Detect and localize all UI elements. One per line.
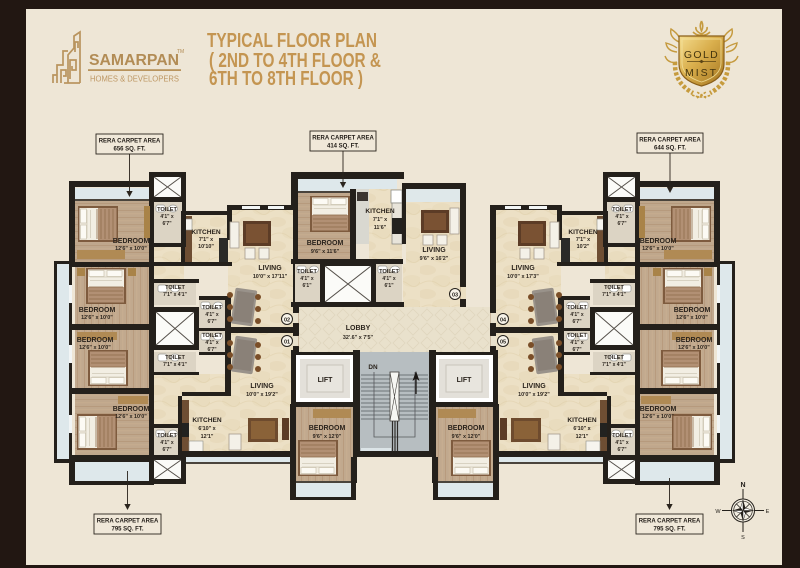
svg-text:6'7": 6'7" [162, 221, 172, 227]
svg-text:644 SQ. FT.: 644 SQ. FT. [654, 146, 686, 152]
svg-text:6'7": 6'7" [572, 319, 582, 325]
svg-text:RERA CARPET AREA: RERA CARPET AREA [639, 138, 701, 144]
svg-text:BEDROOM: BEDROOM [79, 307, 116, 314]
svg-text:7'1" x 4'1": 7'1" x 4'1" [163, 362, 187, 368]
svg-text:12'6" x 10'0": 12'6" x 10'0" [81, 315, 113, 321]
svg-text:LIVING: LIVING [258, 265, 282, 272]
svg-text:KITCHEN: KITCHEN [192, 417, 222, 424]
svg-text:12'6" x 10'0": 12'6" x 10'0" [79, 345, 111, 351]
svg-text:DN: DN [368, 364, 378, 371]
svg-text:10'0" x 19'2": 10'0" x 19'2" [246, 392, 278, 398]
svg-text:BEDROOM: BEDROOM [307, 240, 344, 247]
svg-text:6'7": 6'7" [617, 447, 627, 453]
svg-text:12'6" x 10'0": 12'6" x 10'0" [642, 246, 674, 252]
svg-text:TOILET: TOILET [612, 207, 632, 213]
svg-text:6'7": 6'7" [207, 347, 217, 353]
svg-text:LIVING: LIVING [250, 383, 274, 390]
svg-text:12'6" x 10'0": 12'6" x 10'0" [115, 414, 147, 420]
svg-text:12'6" x 10'0": 12'6" x 10'0" [676, 315, 708, 321]
svg-text:TOILET: TOILET [165, 285, 185, 291]
svg-text:12'6" x 10'0": 12'6" x 10'0" [115, 246, 147, 252]
svg-text:BEDROOM: BEDROOM [77, 337, 114, 344]
svg-text:MIST: MIST [685, 67, 718, 79]
svg-text:KITCHEN: KITCHEN [567, 417, 597, 424]
svg-text:6'1": 6'1" [302, 283, 312, 289]
svg-text:S: S [741, 535, 745, 541]
svg-text:03: 03 [452, 293, 458, 299]
svg-text:BEDROOM: BEDROOM [309, 425, 346, 432]
svg-text:SAMARPAN: SAMARPAN [89, 52, 179, 69]
svg-text:7'1" x: 7'1" x [576, 237, 590, 243]
svg-text:795 SQ. FT.: 795 SQ. FT. [653, 527, 685, 533]
svg-text:10'0" x 17'3": 10'0" x 17'3" [507, 274, 539, 280]
svg-text:6'7": 6'7" [207, 319, 217, 325]
svg-text:4'1" x: 4'1" x [160, 440, 174, 446]
svg-text:LIVING: LIVING [511, 265, 535, 272]
svg-text:TOILET: TOILET [297, 269, 317, 275]
svg-text:4'1" x: 4'1" x [300, 276, 314, 282]
svg-text:KITCHEN: KITCHEN [568, 229, 598, 236]
svg-text:TOILET: TOILET [604, 355, 624, 361]
svg-text:4'1" x: 4'1" x [615, 440, 629, 446]
svg-text:HOMES & DEVELOPERS: HOMES & DEVELOPERS [90, 75, 179, 84]
svg-text:7'1" x: 7'1" x [373, 217, 387, 223]
svg-text:RERA CARPET AREA: RERA CARPET AREA [99, 139, 161, 145]
svg-text:LIVING: LIVING [422, 247, 446, 254]
svg-text:TOILET: TOILET [202, 305, 222, 311]
svg-text:E: E [766, 509, 770, 515]
svg-text:6TH TO 8TH FLOOR ): 6TH TO 8TH FLOOR ) [209, 68, 363, 90]
svg-text:TOILET: TOILET [157, 433, 177, 439]
svg-text:GOLD: GOLD [684, 49, 719, 61]
svg-text:BEDROOM: BEDROOM [113, 406, 150, 413]
svg-text:6'10" x: 6'10" x [573, 426, 590, 432]
svg-text:TOILET: TOILET [567, 305, 587, 311]
svg-text:11'6": 11'6" [374, 225, 387, 231]
svg-text:7'1" x 4'1": 7'1" x 4'1" [602, 292, 626, 298]
svg-text:6'10" x: 6'10" x [198, 426, 215, 432]
svg-text:LIFT: LIFT [457, 377, 472, 384]
svg-text:TOILET: TOILET [604, 285, 624, 291]
svg-text:10'10": 10'10" [198, 244, 214, 250]
svg-text:LOBBY: LOBBY [346, 325, 371, 332]
svg-text:BEDROOM: BEDROOM [113, 238, 150, 245]
svg-text:6'7": 6'7" [572, 347, 582, 353]
svg-text:7'1" x 4'1": 7'1" x 4'1" [602, 362, 626, 368]
svg-text:W: W [715, 509, 721, 515]
svg-text:KITCHEN: KITCHEN [191, 229, 221, 236]
svg-text:N: N [740, 482, 745, 489]
svg-text:12'6" x 10'0": 12'6" x 10'0" [642, 414, 674, 420]
svg-text:9'6" x 11'6": 9'6" x 11'6" [311, 249, 340, 255]
svg-text:KITCHEN: KITCHEN [365, 208, 395, 215]
svg-text:BEDROOM: BEDROOM [640, 406, 677, 413]
svg-text:795 SQ. FT.: 795 SQ. FT. [111, 527, 143, 533]
svg-text:7'1" x 4'1": 7'1" x 4'1" [163, 292, 187, 298]
svg-text:TOILET: TOILET [202, 333, 222, 339]
svg-text:4'1" x: 4'1" x [205, 340, 219, 346]
svg-text:4'1" x: 4'1" x [205, 312, 219, 318]
svg-text:TOILET: TOILET [612, 433, 632, 439]
svg-text:02: 02 [284, 318, 290, 324]
svg-text:4'1" x: 4'1" x [570, 340, 584, 346]
svg-text:RERA CARPET AREA: RERA CARPET AREA [97, 519, 159, 525]
svg-text:6'7": 6'7" [162, 447, 172, 453]
svg-text:6'7": 6'7" [617, 221, 627, 227]
svg-text:9'6" x 16'2": 9'6" x 16'2" [420, 256, 449, 262]
svg-text:7'1" x: 7'1" x [199, 237, 213, 243]
svg-text:BEDROOM: BEDROOM [640, 238, 677, 245]
svg-text:4'1" x: 4'1" x [382, 276, 396, 282]
svg-text:4'1" x: 4'1" x [160, 214, 174, 220]
svg-text:32'.6" x 7'5": 32'.6" x 7'5" [343, 335, 374, 341]
svg-text:656 SQ. FT.: 656 SQ. FT. [113, 147, 145, 153]
svg-text:01: 01 [284, 340, 290, 346]
svg-text:9'6" x 12'0": 9'6" x 12'0" [452, 434, 481, 440]
svg-text:12'1": 12'1" [201, 434, 214, 440]
svg-text:RERA CARPET AREA: RERA CARPET AREA [639, 519, 701, 525]
svg-text:12'1": 12'1" [576, 434, 589, 440]
svg-text:RERA CARPET AREA: RERA CARPET AREA [312, 136, 374, 142]
svg-text:6'1": 6'1" [384, 283, 394, 289]
svg-text:10'2": 10'2" [577, 244, 590, 250]
svg-text:9'6" x 12'0": 9'6" x 12'0" [313, 434, 342, 440]
svg-text:TOILET: TOILET [567, 333, 587, 339]
svg-text:10'0" x 17'11": 10'0" x 17'11" [253, 274, 288, 280]
svg-text:BEDROOM: BEDROOM [674, 307, 711, 314]
svg-text:04: 04 [500, 318, 507, 324]
svg-text:05: 05 [500, 340, 506, 346]
svg-text:TOILET: TOILET [165, 355, 185, 361]
svg-text:414 SQ. FT.: 414 SQ. FT. [327, 144, 359, 150]
svg-text:LIVING: LIVING [522, 383, 546, 390]
svg-text:12'6" x 10'0": 12'6" x 10'0" [678, 345, 710, 351]
svg-text:TM: TM [177, 49, 184, 55]
svg-text:TYPICAL FLOOR PLAN: TYPICAL FLOOR PLAN [207, 30, 377, 52]
svg-text:BEDROOM: BEDROOM [676, 337, 713, 344]
svg-text:4'1" x: 4'1" x [570, 312, 584, 318]
svg-text:4'1" x: 4'1" x [615, 214, 629, 220]
svg-text:LIFT: LIFT [318, 377, 333, 384]
svg-text:10'0" x 19'2": 10'0" x 19'2" [518, 392, 550, 398]
svg-text:TOILET: TOILET [379, 269, 399, 275]
svg-text:BEDROOM: BEDROOM [448, 425, 485, 432]
svg-text:TOILET: TOILET [157, 207, 177, 213]
